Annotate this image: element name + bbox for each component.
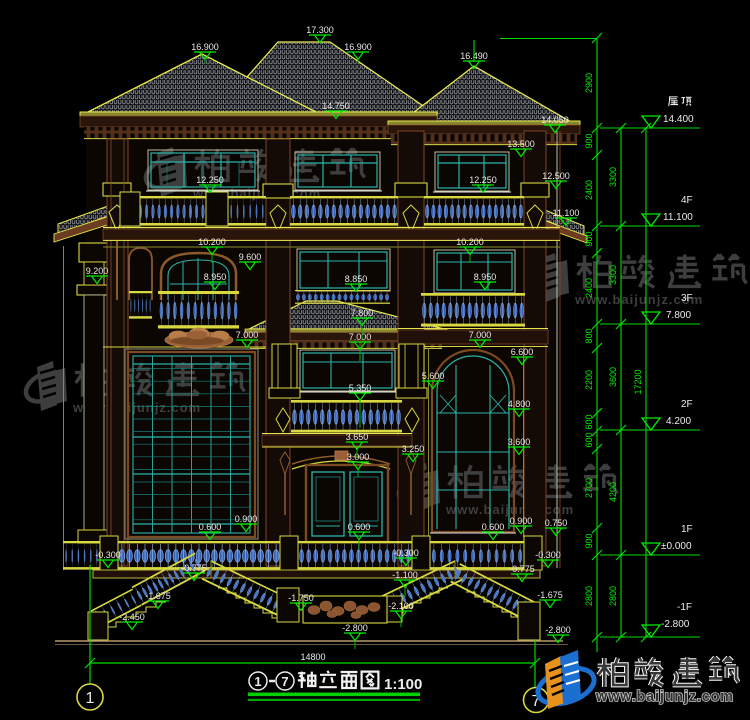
svg-text:3.650: 3.650 [346,432,369,442]
svg-text:6.600: 6.600 [511,347,534,357]
svg-text:8.850: 8.850 [345,274,368,284]
svg-text:17.300: 17.300 [306,25,334,35]
svg-text:8.950: 8.950 [474,272,497,282]
svg-text:17200: 17200 [633,369,643,394]
svg-text:8.950: 8.950 [204,272,227,282]
svg-text:2200: 2200 [584,370,594,390]
svg-text:3.600: 3.600 [508,437,531,447]
svg-text:4F: 4F [681,195,693,206]
svg-text:900: 900 [584,133,594,148]
svg-text:-1.675: -1.675 [145,591,171,601]
svg-text:14800: 14800 [300,652,325,662]
svg-text:2400: 2400 [584,278,594,298]
svg-text:-1.100: -1.100 [392,570,418,580]
svg-text:11.100: 11.100 [553,208,580,218]
svg-text:5.600: 5.600 [422,371,445,381]
svg-text:7.800: 7.800 [666,310,691,321]
svg-text:-2.100: -2.100 [388,601,414,611]
svg-text:600: 600 [584,432,594,447]
svg-text:0.600: 0.600 [199,522,222,532]
svg-text:5.350: 5.350 [349,383,372,393]
svg-text:16.900: 16.900 [191,42,219,52]
svg-text:2700: 2700 [584,478,594,498]
svg-text:-0.775: -0.775 [509,564,535,574]
svg-text:-2.450: -2.450 [119,612,145,622]
svg-text:±0.000: ±0.000 [661,541,692,552]
svg-text:-1.675: -1.675 [537,590,563,600]
svg-text:7.000: 7.000 [469,330,492,340]
svg-text:0.600: 0.600 [482,522,505,532]
svg-text:900: 900 [584,231,594,246]
svg-text:11.100: 11.100 [663,212,693,223]
svg-text:3300: 3300 [608,265,618,285]
svg-text:14.750: 14.750 [322,101,350,111]
svg-text:-0.300: -0.300 [535,550,561,560]
svg-text:14.050: 14.050 [541,115,569,125]
svg-text:-1.750: -1.750 [288,593,314,603]
svg-text:7: 7 [281,674,288,689]
svg-text:-1F: -1F [677,602,692,613]
svg-text:3.250: 3.250 [402,444,425,454]
svg-text:14.400: 14.400 [663,114,694,125]
svg-text:7.000: 7.000 [236,330,259,340]
svg-text:2800: 2800 [608,586,618,606]
svg-text:4200: 4200 [608,482,618,502]
svg-text:10.200: 10.200 [198,237,226,247]
svg-text:2F: 2F [681,399,693,410]
svg-text:13.500: 13.500 [507,139,535,149]
svg-text:9.200: 9.200 [86,266,109,276]
svg-text:-2.800: -2.800 [545,625,571,635]
svg-text:3F: 3F [681,293,693,304]
svg-text:12.250: 12.250 [469,175,497,185]
svg-text:900: 900 [584,533,594,548]
svg-text:-0.300: -0.300 [95,550,121,560]
svg-text:1:100: 1:100 [384,676,422,693]
svg-text:3600: 3600 [608,367,618,387]
svg-text:7.000: 7.000 [349,332,372,342]
svg-text:-2.800: -2.800 [661,619,690,630]
svg-text:600: 600 [584,414,594,429]
svg-text:-0.775: -0.775 [181,563,207,573]
svg-text:0.600: 0.600 [348,522,371,532]
svg-text:7.800: 7.800 [351,308,374,318]
svg-text:12.500: 12.500 [542,171,570,181]
svg-text:3300: 3300 [608,167,618,187]
svg-text:0.900: 0.900 [510,516,533,526]
svg-text:1: 1 [254,674,261,689]
svg-text:2400: 2400 [584,180,594,200]
svg-text:1F: 1F [681,524,693,535]
svg-text:4.800: 4.800 [508,399,531,409]
svg-text:2800: 2800 [584,586,594,606]
svg-text:16.900: 16.900 [344,42,372,52]
svg-text:10.200: 10.200 [456,237,484,247]
svg-text:-2.800: -2.800 [342,623,368,633]
svg-text:0.900: 0.900 [235,514,258,524]
svg-text:12.250: 12.250 [196,175,224,185]
svg-text:4.200: 4.200 [666,416,691,427]
svg-text:3.000: 3.000 [347,452,370,462]
svg-text:1: 1 [86,690,95,707]
svg-text:2900: 2900 [584,73,594,93]
svg-text:www.baijunjz.com: www.baijunjz.com [595,689,734,705]
svg-text:9.600: 9.600 [239,252,262,262]
svg-text:-0.300: -0.300 [393,548,419,558]
svg-text:0.750: 0.750 [545,518,568,528]
svg-text:800: 800 [584,328,594,343]
